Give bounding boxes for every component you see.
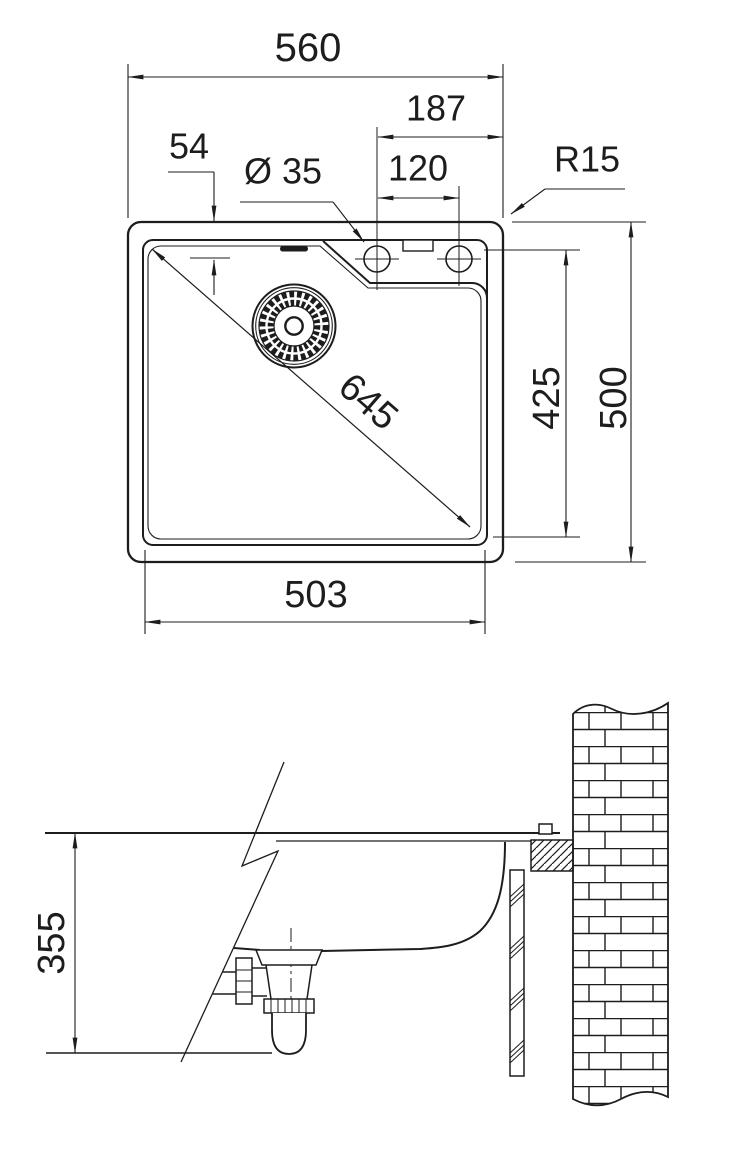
waste-outlet bbox=[213, 958, 267, 1004]
dim-120-label: 120 bbox=[388, 148, 448, 189]
wall-batten bbox=[510, 870, 524, 1076]
dim-645-line bbox=[152, 249, 470, 527]
dim-500-label: 500 bbox=[593, 366, 635, 429]
dim-r15-leader bbox=[511, 189, 545, 214]
sink-technical-drawing: 645 560 187 120 54 bbox=[0, 0, 732, 1152]
dim-503-label: 503 bbox=[284, 574, 347, 616]
dim-560-label: 560 bbox=[275, 26, 342, 70]
drain-nut bbox=[264, 999, 314, 1013]
overflow-slot bbox=[280, 246, 308, 252]
drain-body-left bbox=[266, 965, 271, 999]
dim-425-label: 425 bbox=[526, 366, 568, 429]
bowl-section bbox=[322, 842, 505, 951]
dim-r15-label: R15 bbox=[554, 139, 620, 180]
dim-54-label: 54 bbox=[169, 126, 209, 167]
rim-rear-lip bbox=[539, 824, 552, 834]
dim-355-label: 355 bbox=[31, 911, 73, 974]
top-view: 645 560 187 120 54 bbox=[128, 26, 646, 634]
drain-trap bbox=[213, 928, 322, 1054]
dim-hole-diameter: Ø 35 bbox=[240, 151, 364, 243]
drain-body-right bbox=[307, 965, 312, 999]
sink-technical-drawing-page: 645 560 187 120 54 bbox=[0, 0, 732, 1152]
dim-645-label: 645 bbox=[330, 365, 405, 438]
dim-120: 120 bbox=[378, 148, 459, 199]
dim-d35-label: Ø 35 bbox=[244, 151, 322, 192]
break-line bbox=[181, 762, 284, 1062]
dim-187: 187 bbox=[378, 88, 503, 138]
dim-425: 425 bbox=[484, 250, 580, 537]
drain-strainer bbox=[253, 285, 336, 368]
strainer-center-cap bbox=[285, 317, 302, 334]
dim-187-label: 187 bbox=[406, 88, 466, 129]
accessory-slot bbox=[403, 240, 433, 251]
dim-diagonal-645: 645 bbox=[152, 249, 470, 527]
worktop-section bbox=[531, 840, 573, 871]
dim-r15: R15 bbox=[511, 139, 625, 215]
drain-flange bbox=[256, 950, 322, 965]
side-view: 355 bbox=[31, 703, 668, 1105]
drain-cup bbox=[272, 1013, 306, 1054]
dim-54: 54 bbox=[168, 126, 230, 296]
wall-brick bbox=[573, 703, 668, 1105]
